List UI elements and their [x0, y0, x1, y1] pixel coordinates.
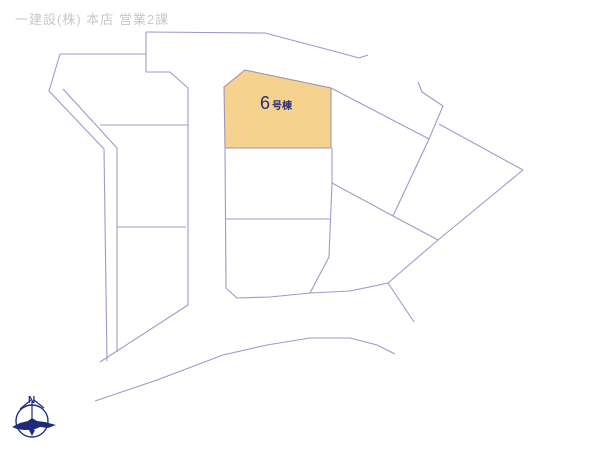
- east-corner-down: [438, 170, 523, 240]
- compass-needle-tip: [29, 430, 35, 436]
- road-west-edge: [100, 32, 188, 362]
- compass-rose: N: [6, 390, 66, 450]
- branch-to-j2: [332, 183, 393, 216]
- parcel-suffix: 号棟: [272, 102, 292, 112]
- midcol-left-and-bottom: [225, 148, 388, 298]
- diag-to-east-corner: [439, 124, 523, 170]
- company-caption: 一建設(株) 本店 営業2課: [15, 9, 169, 28]
- compass-wing: [12, 418, 56, 430]
- strip-inner-edge: [63, 89, 117, 352]
- parcel-label-6: 6 号棟: [260, 94, 292, 112]
- j2-to-j4: [393, 216, 438, 240]
- stub-southeast: [388, 283, 414, 322]
- strip-outer-edge: [49, 54, 107, 361]
- rotated-parcel-left-edge: [393, 139, 429, 216]
- road-kink-east: [418, 82, 443, 139]
- diag-parcel6-to-j1: [331, 88, 429, 139]
- plot-map-canvas: 一建設(株) 本店 営業2課 6 号棟 N: [0, 0, 600, 450]
- road-bottom-curve: [95, 338, 395, 401]
- plot-map: [0, 0, 600, 450]
- j4-to-j5: [388, 240, 438, 283]
- parcel-number: 6: [260, 94, 270, 112]
- road-top-edge: [146, 32, 368, 58]
- midcol-right-edge: [310, 148, 332, 293]
